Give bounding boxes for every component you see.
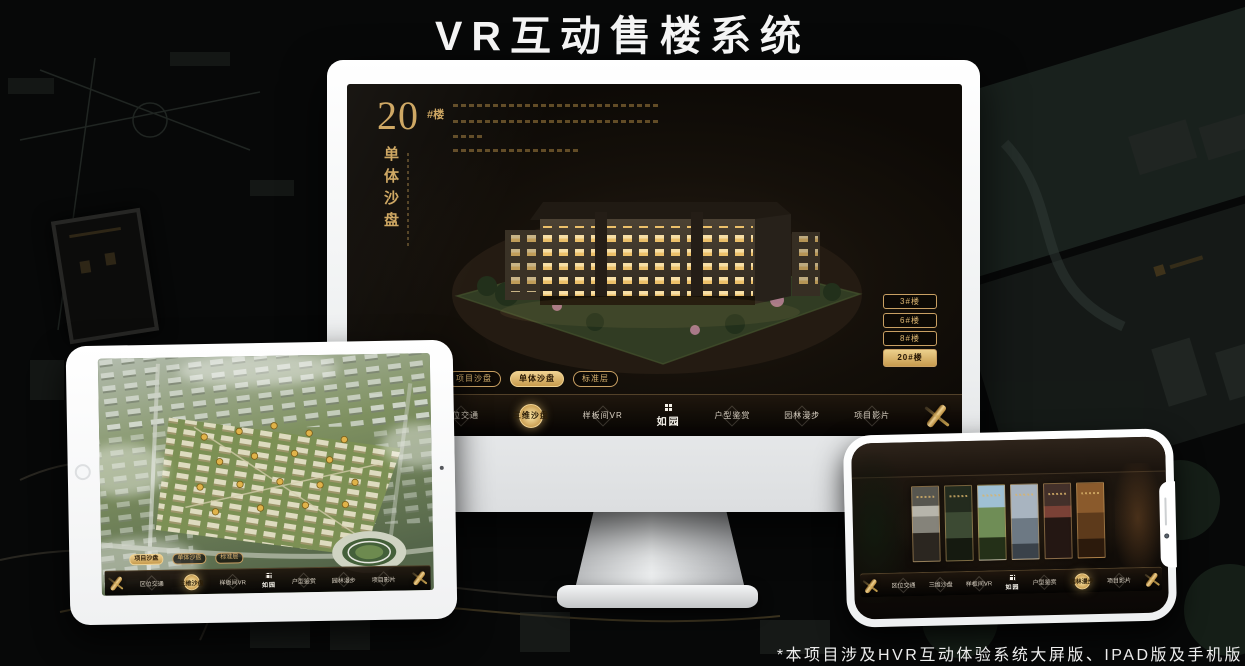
gallery-panel[interactable] — [1076, 482, 1106, 559]
building-number-suffix: #楼 — [427, 106, 444, 122]
phone-screen: 区位交通 三维沙盘 样板间VR 如园 户型鉴赏 园林漫步 项目影片 — [851, 436, 1169, 619]
nav-item-floorplans[interactable]: 户型鉴赏 — [1032, 577, 1056, 587]
gallery-panel[interactable] — [977, 484, 1007, 561]
nav-item-floorplans[interactable]: 户型鉴赏 — [714, 410, 750, 421]
tab-standard-floor[interactable]: 标准层 — [573, 371, 618, 387]
nav-item-3d-sandbox[interactable]: 三维沙盘 — [180, 578, 204, 587]
gallery-panel[interactable] — [944, 485, 974, 562]
floor-button-20[interactable]: 20#楼 — [883, 349, 937, 367]
nav-item-showroom-vr[interactable]: 样板间VR — [966, 578, 993, 588]
intro-text-line — [453, 104, 658, 107]
intro-text-line — [453, 135, 483, 138]
nav-item-project-film[interactable]: 项目影片 — [1107, 575, 1131, 585]
scroll-menu-icon[interactable] — [108, 575, 124, 591]
home-button — [75, 464, 91, 480]
seal-icon — [1009, 574, 1015, 580]
floor-button-6[interactable]: 6#楼 — [883, 313, 937, 328]
phone-frame: 区位交通 三维沙盘 样板间VR 如园 户型鉴赏 园林漫步 项目影片 — [843, 428, 1177, 627]
nav-item-location[interactable]: 区位交通 — [891, 580, 915, 590]
intro-text-line — [453, 149, 578, 152]
nav-item-garden-walk[interactable]: 园林漫步 — [332, 575, 356, 584]
seal-icon — [266, 573, 272, 579]
scroll-menu-icon[interactable] — [1144, 571, 1160, 587]
brand-logo: 如园 — [262, 573, 276, 589]
ipad-view-tabs: 项目沙盘 单体沙盘 标准层 — [129, 552, 243, 565]
nav-item-project-film[interactable]: 项目影片 — [372, 574, 396, 583]
ipad-frame: 项目沙盘 单体沙盘 标准层 区位交通 三维沙盘 样板间VR 如园 户型鉴赏 园林… — [66, 340, 458, 626]
floor-button-8[interactable]: 8#楼 — [883, 331, 937, 346]
background-plaque — [51, 208, 159, 345]
camera-icon — [440, 466, 444, 470]
ipad-screen: 项目沙盘 单体沙盘 标准层 区位交通 三维沙盘 样板间VR 如园 户型鉴赏 园林… — [98, 353, 434, 596]
gallery-panel[interactable] — [1043, 483, 1073, 560]
nav-item-showroom-vr[interactable]: 样板间VR — [583, 410, 623, 421]
floor-button-3[interactable]: 3#楼 — [883, 294, 937, 309]
nav-item-3d-sandbox[interactable]: 三维沙盘 — [929, 579, 953, 589]
building-3d-render — [445, 134, 875, 374]
scroll-menu-icon[interactable] — [411, 570, 427, 586]
nav-item-3d-sandbox[interactable]: 三维沙盘 — [513, 410, 549, 421]
tab-project-sandbox[interactable]: 项目沙盘 — [129, 554, 163, 566]
footnote: *本项目涉及HVR互动体验系统大屏版、IPAD版及手机版 — [777, 641, 1243, 665]
monitor-stand-base — [557, 585, 758, 608]
page-canvas: VR互动售楼系统 20 #楼 单体沙盘 — [0, 0, 1245, 666]
page-title: VR互动售楼系统 — [0, 2, 1245, 62]
scroll-menu-icon[interactable] — [862, 578, 878, 594]
view-tabs: 项目沙盘 单体沙盘 标准层 — [447, 371, 618, 387]
camera-icon — [1164, 533, 1169, 538]
nav-item-showroom-vr[interactable]: 样板间VR — [219, 577, 245, 586]
phone-notch — [1159, 481, 1177, 567]
nav-item-garden-walk[interactable]: 园林漫步 — [784, 410, 820, 421]
nav-item-garden-walk[interactable]: 园林漫步 — [1070, 576, 1094, 586]
tab-single-sandbox[interactable]: 单体沙盘 — [510, 371, 564, 387]
tab-standard-floor[interactable]: 标准层 — [215, 552, 243, 564]
nav-item-floorplans[interactable]: 户型鉴赏 — [292, 576, 316, 585]
nav-item-project-film[interactable]: 项目影片 — [854, 410, 890, 421]
tab-single-sandbox[interactable]: 单体沙盘 — [172, 553, 206, 565]
building-number: 20 — [377, 92, 419, 139]
seal-icon — [664, 403, 673, 412]
building-subtitle-vertical: 单体沙盘 — [380, 146, 401, 234]
gallery-panel[interactable] — [911, 486, 941, 563]
subtitle-latin-decor — [407, 150, 409, 246]
nav-item-location[interactable]: 区位交通 — [140, 578, 164, 587]
tab-project-sandbox[interactable]: 项目沙盘 — [447, 371, 501, 387]
brand-logo: 如园 — [1005, 574, 1019, 590]
speaker-icon — [1164, 497, 1167, 525]
ipad-bottom-nav: 区位交通 三维沙盘 样板间VR 如园 户型鉴赏 园林漫步 项目影片 — [105, 565, 431, 596]
monitor-stand-neck — [575, 511, 745, 589]
scroll-menu-icon[interactable] — [924, 403, 950, 429]
brand-logo: 如园 — [657, 403, 681, 428]
gallery-panel[interactable] — [1010, 483, 1040, 560]
phone-gallery — [911, 482, 1106, 562]
intro-text-line — [453, 120, 658, 123]
